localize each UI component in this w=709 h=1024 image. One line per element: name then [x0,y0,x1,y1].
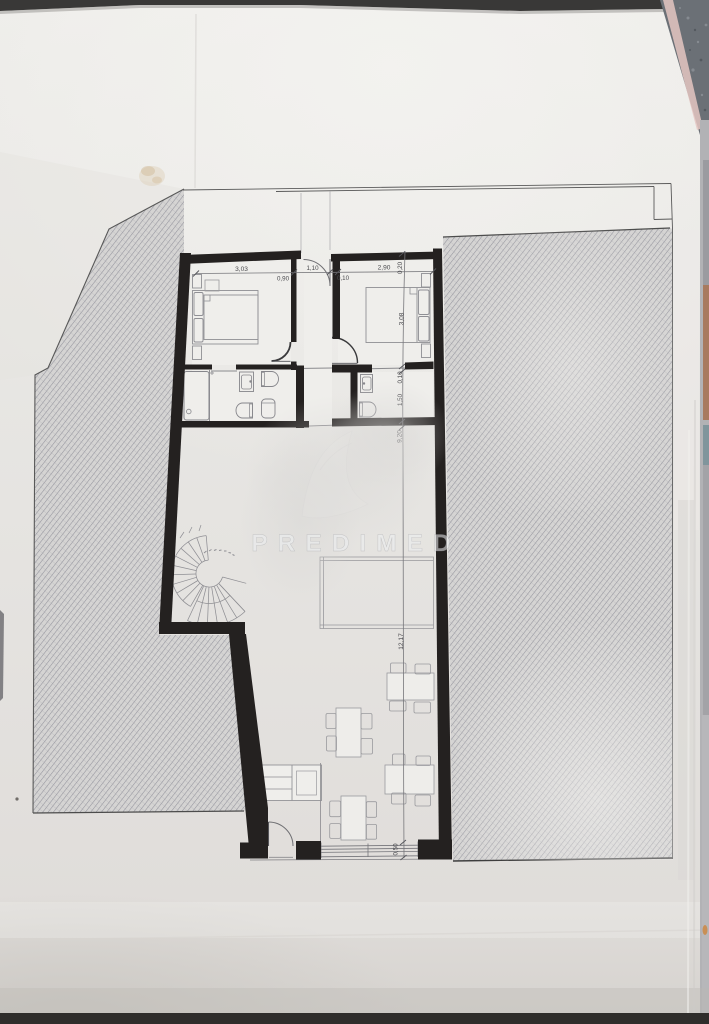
svg-text:PREDIMED: PREDIMED [251,530,460,557]
svg-text:0,90: 0,90 [277,276,290,283]
svg-text:3,08: 3,08 [399,312,406,325]
svg-text:0,20: 0,20 [397,261,404,274]
svg-text:2,90: 2,90 [378,265,391,272]
svg-text:0,10: 0,10 [337,275,350,282]
svg-text:3,03: 3,03 [235,266,248,273]
svg-text:1,10: 1,10 [306,265,319,272]
svg-text:0,50: 0,50 [393,843,400,856]
svg-text:12,17: 12,17 [398,633,405,650]
